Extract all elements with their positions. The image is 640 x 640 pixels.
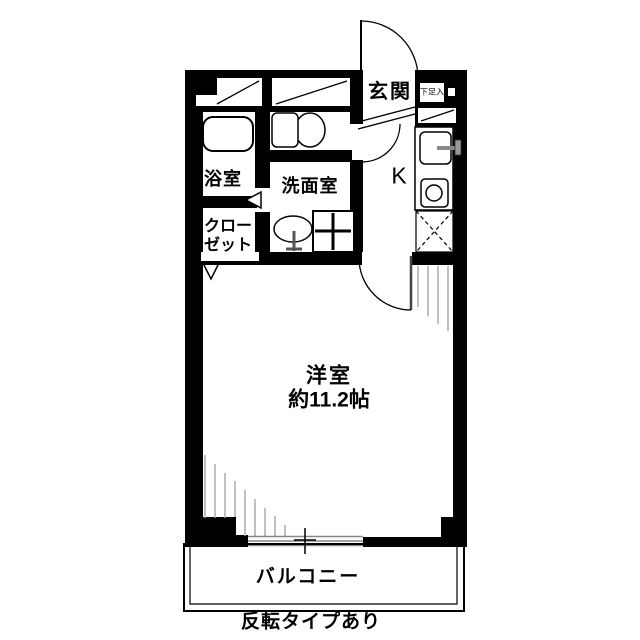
hallway-door-arc-icon <box>362 124 400 162</box>
bathroom-label: 浴室 <box>204 170 242 190</box>
floor-plan: 玄関 下足入 K 浴室 洗面室 クロー ゼット 洋室 約11.2帖 バルコニー … <box>0 0 640 640</box>
kitchen-label: K <box>391 163 406 188</box>
entrance-door-icon <box>361 20 418 78</box>
washing-machine-pan-icon <box>313 211 354 252</box>
refrigerator-space-icon <box>416 211 453 252</box>
hatch-top-right <box>418 266 448 331</box>
closet-label-line1: クロー <box>204 217 252 236</box>
washbasin-icon <box>274 216 312 251</box>
balcony-label: バルコニー <box>256 568 361 589</box>
entrance-step-lines <box>358 107 415 129</box>
toilet-icon <box>272 113 325 147</box>
bathtub-icon <box>203 117 253 151</box>
western-room-size: 約11.2帖 <box>288 388 370 411</box>
floor-plan-drawing <box>0 0 640 640</box>
mirror-type-note: 反転タイプあり <box>241 613 381 634</box>
western-room-label: 洋室 <box>306 364 352 387</box>
closet-label-line2: ゼット <box>204 236 252 255</box>
shoe-storage-label: 下足入 <box>420 89 444 98</box>
closet-label: クロー ゼット <box>204 217 252 255</box>
washroom-label: 洗面室 <box>282 177 339 197</box>
duct-box-notch <box>196 78 217 95</box>
closet-door-marker-icon <box>203 263 219 279</box>
entrance-label: 玄関 <box>368 81 412 103</box>
